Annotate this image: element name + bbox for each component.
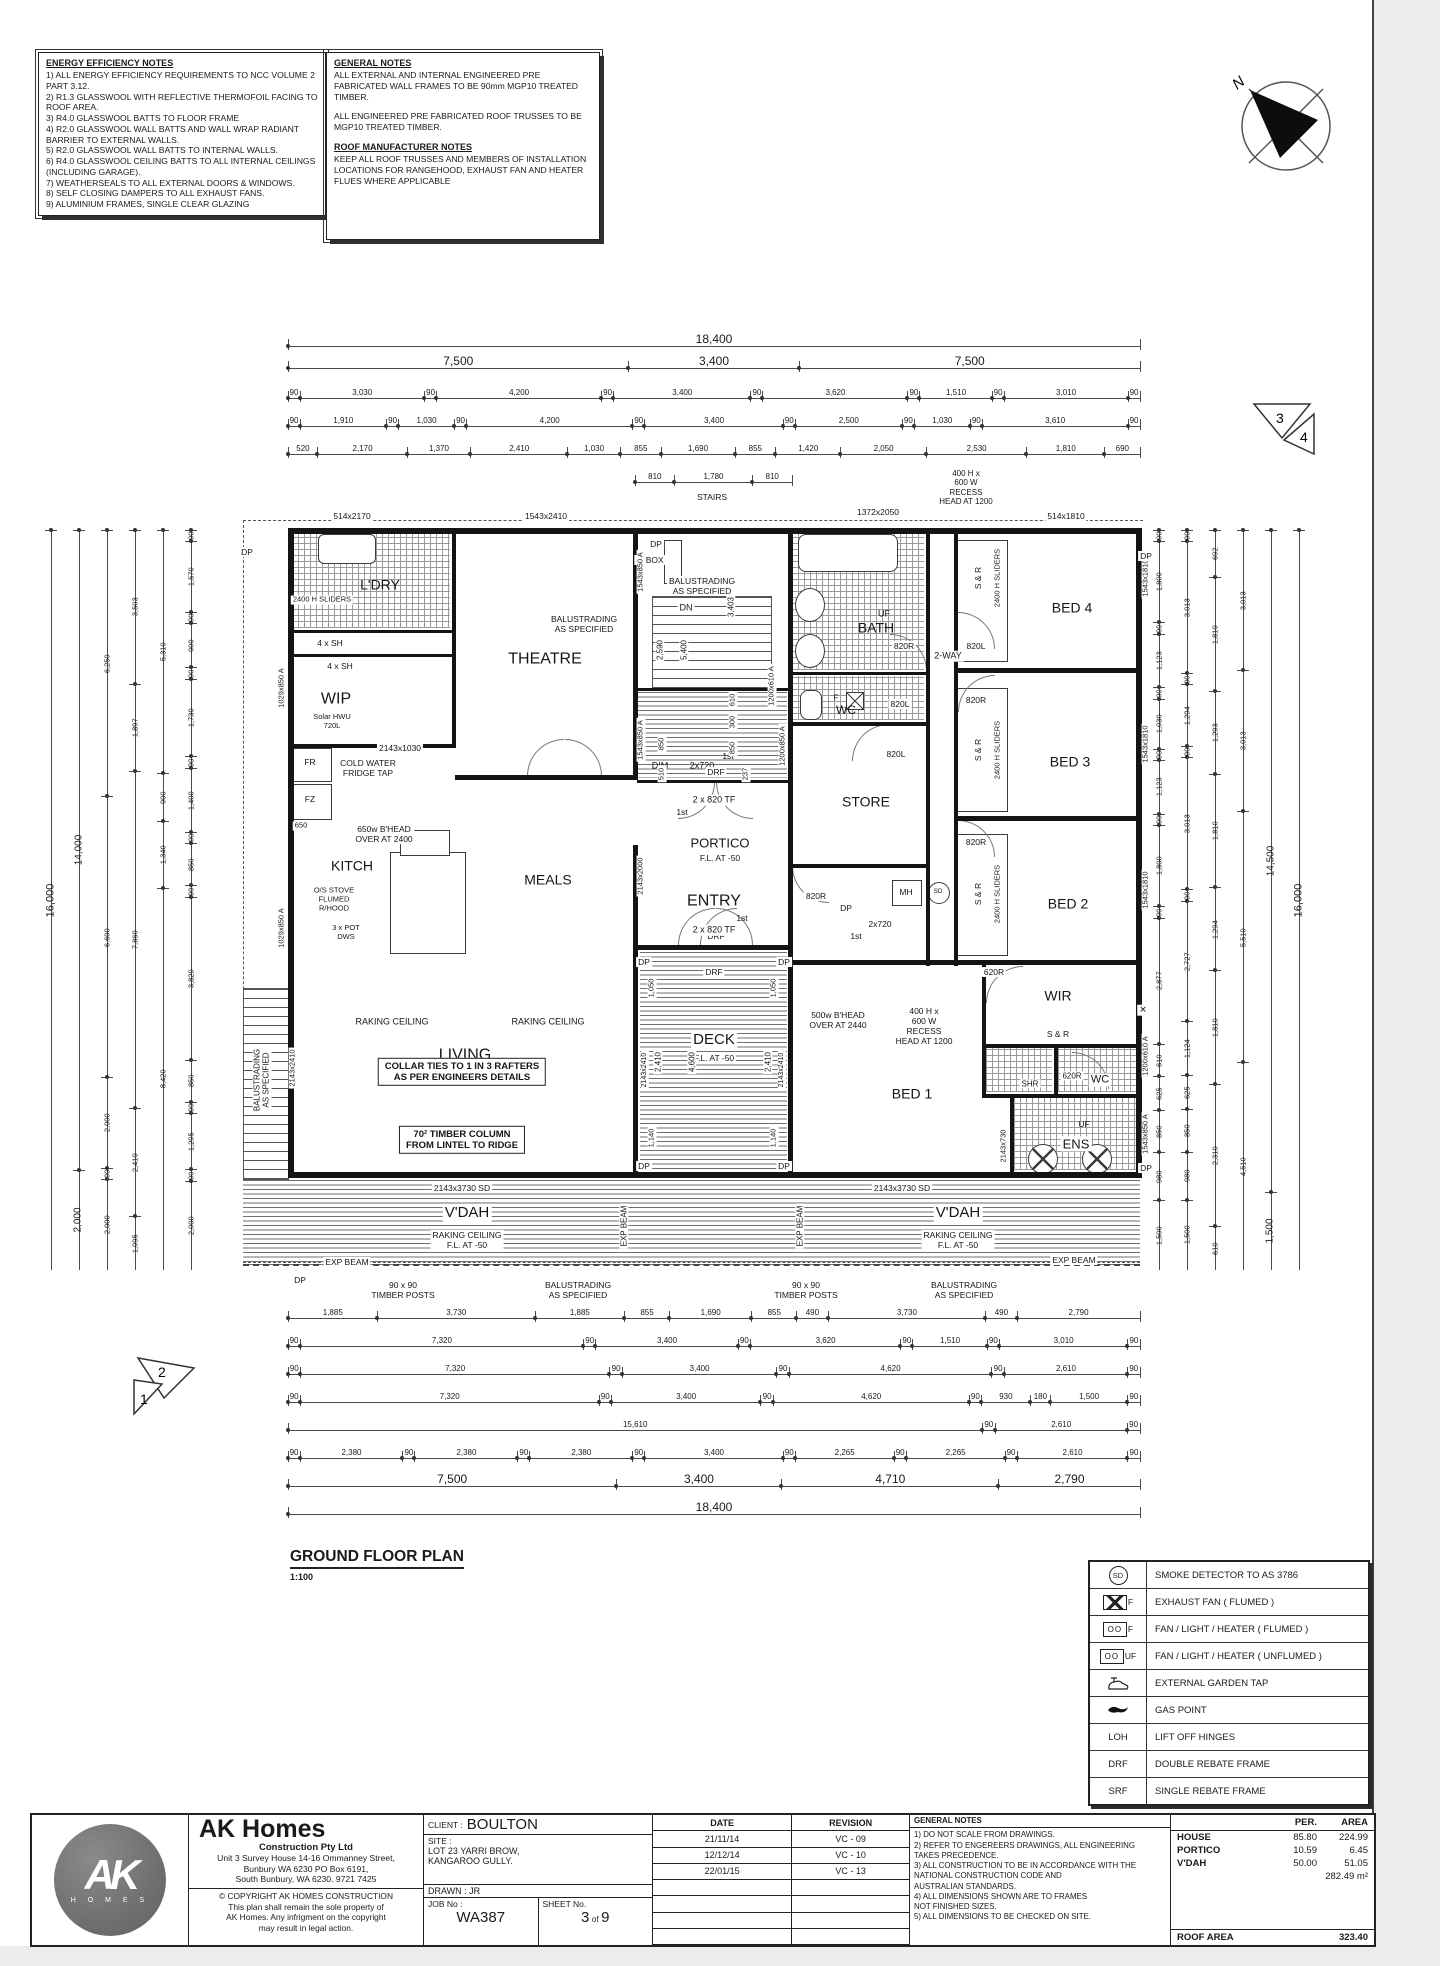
plan-annotation: 850: [658, 736, 667, 753]
plan-annotation: 500w B'HEAD OVER AT 2440: [807, 1010, 868, 1030]
plan-annotation: DRF: [703, 967, 724, 977]
plan-annotation: 1543x850 A: [1142, 1112, 1151, 1156]
plan-annotation: 2143x2000: [637, 855, 646, 896]
wall: [633, 945, 793, 950]
plan-annotation: 400 H x 600 W RECESS HEAD AT 1200: [896, 1006, 953, 1046]
dimension-column: 14,0002,000: [72, 530, 86, 1270]
wall: [452, 528, 456, 746]
plan-annotation: 620R: [1060, 1071, 1083, 1080]
plan-annotation: 300: [729, 714, 738, 731]
plan-annotation: 1,140: [648, 1127, 657, 1150]
plan-annotation: THEATRE: [508, 651, 581, 670]
svg-text:3: 3: [1276, 410, 1284, 426]
plan-annotation: 237: [742, 766, 751, 783]
area-row: V'DAH50.0051.05: [1171, 1857, 1374, 1870]
wall: [982, 1094, 1140, 1098]
client-name: BOULTON: [467, 1816, 538, 1833]
dimension-row: 1,8853,7301,8858551,6908554903,7304902,7…: [288, 1308, 1140, 1322]
plan-annotation: DRF: [705, 767, 726, 777]
plan-annotation: RAKING CEILING: [355, 1017, 428, 1028]
plan-annotation: 3 x POT DWS: [332, 924, 360, 942]
plan-annotation: 820R: [892, 641, 916, 651]
plan-annotation: BED 2: [1048, 896, 1088, 913]
drawing-sheet-page: ENERGY EFFICIENCY NOTES 1) ALL ENERGY EF…: [0, 0, 1440, 1966]
logo-monogram: AK: [85, 1856, 136, 1894]
oo-icon: OOUF: [1090, 1643, 1147, 1669]
dimension-row: 8101,780810: [635, 472, 792, 486]
plan-annotation: 1029x850 A: [278, 666, 287, 710]
floor-hatch: [243, 1180, 1140, 1266]
fan-icon: F: [1090, 1589, 1147, 1615]
dimension-column: 903,013901,294903,013902,7271,1246258509…: [1180, 530, 1194, 1270]
plan-annotation: DECK: [691, 1031, 737, 1049]
plan-annotation: WIP: [321, 691, 351, 710]
svg-text:1: 1: [140, 1391, 148, 1407]
wall: [455, 775, 637, 780]
plan-annotation: 1543x850 A: [637, 718, 646, 762]
job-number: WA387: [428, 1909, 534, 1926]
plan-annotation: 4 x SH: [327, 661, 353, 671]
logo-word: H O M E S: [71, 1897, 149, 1904]
plan-annotation: 820R: [964, 695, 988, 705]
plan-annotation: F.L. AT -50: [700, 853, 740, 863]
plan-annotation: 2 x 820 TF: [691, 925, 738, 936]
area-row: HOUSE85.80224.99: [1171, 1831, 1374, 1844]
dimension-row: 907,320903,400904,620909301801,50090: [288, 1392, 1140, 1406]
plan-annotation: 2143x3730 SD: [432, 1183, 492, 1193]
plan-annotation: 620R: [982, 967, 1006, 977]
svg-text:N: N: [1232, 73, 1248, 93]
plan-annotation: 514x2170: [331, 511, 372, 521]
text-icon: LOH: [1090, 1724, 1147, 1750]
plan-annotation: BALUSTRADING AS SPECIFIED: [551, 614, 617, 634]
site-row: SITE : LOT 23 YARRI BROW, KANGAROO GULLY…: [424, 1835, 652, 1885]
plan-annotation: EXP BEAM: [323, 1257, 370, 1267]
plan-annotation: V'DAH: [934, 1204, 983, 1222]
drawn-row: DRAWN : JR: [424, 1885, 652, 1898]
wall: [288, 528, 1142, 534]
door-swing: [852, 724, 889, 761]
section-marker-3-4: 3 4: [1248, 396, 1320, 465]
company-name: AK Homes: [189, 1817, 423, 1842]
plan-annotation: BED 1: [892, 1086, 932, 1103]
dashed-outline: [243, 520, 1143, 521]
dimension-row: 15,610902,61090: [288, 1420, 1140, 1434]
wall: [288, 630, 452, 633]
plan-title: GROUND FLOOR PLAN: [290, 1548, 464, 1569]
plan-annotation: 650w B'HEAD OVER AT 2400: [353, 824, 414, 844]
plan-annotation: 400 H x 600 W RECESS HEAD AT 1200: [939, 469, 993, 507]
plan-annotation: 1200x850 A: [779, 724, 788, 768]
general-notes-box: GENERAL NOTES ALL EXTERNAL AND INTERNAL …: [326, 52, 600, 240]
circle-icon: SD: [1090, 1562, 1147, 1588]
plan-annotation: BATH: [858, 620, 894, 637]
plan-annotation: 1st: [850, 931, 861, 941]
plan-annotation: KITCH: [331, 858, 373, 875]
fixture: [798, 534, 898, 572]
plan-annotation: 1543x1810: [1142, 557, 1151, 598]
dimension-column: 901,800901,123901,030901,123901,800902,8…: [1152, 530, 1166, 1270]
plan-annotation: 1200x610 A: [1142, 1034, 1151, 1078]
plan-annotation: RAKING CEILING: [511, 1017, 584, 1028]
wall: [1054, 1048, 1058, 1096]
legend-label: EXHAUST FAN ( FLUMED ): [1147, 1589, 1368, 1615]
plan-annotation: BALUSTRADING AS SPECIFIED: [253, 1047, 272, 1113]
oo-icon: OOF: [1090, 1616, 1147, 1642]
plan-annotation: 2x720: [866, 919, 893, 929]
legend-label: SMOKE DETECTOR TO AS 3786: [1147, 1562, 1368, 1588]
plan-annotation: Solar HWU 720L: [313, 713, 351, 731]
plan-annotation: DN: [678, 603, 695, 614]
plan-annotation: MEALS: [524, 872, 571, 889]
plan-annotation: BALUSTRADING AS SPECIFIED: [667, 576, 737, 596]
titleblock-general-notes: GENERAL NOTES 1) DO NOT SCALE FROM DRAWI…: [910, 1815, 1171, 1945]
fixture: [1028, 1144, 1058, 1174]
section-marker-2-1: 2 1: [128, 1352, 200, 1425]
sheet-number-cell: SHEET No. 3 of 9: [539, 1898, 653, 1945]
dimension-row: 903,030904,200903,400903,620901,510903,0…: [288, 388, 1140, 402]
plan-annotation: DP: [776, 1161, 792, 1171]
wall: [788, 960, 1140, 965]
plan-annotation: EXP BEAM: [619, 1204, 628, 1249]
dimension-column: 3,5031,8977,8602,4101,095: [128, 530, 142, 1270]
revision-table: DATEREVISION21/11/14VC - 0912/12/14VC - …: [653, 1815, 910, 1945]
plan-annotation: 2143x1030: [377, 743, 423, 753]
roof-manufacturer-notes-body: KEEP ALL ROOF TRUSSES AND MEMBERS OF INS…: [334, 154, 592, 186]
plan-annotation: 2,590: [655, 638, 664, 662]
plan-annotation: 1543x1810: [1142, 723, 1151, 764]
plan-annotation: 820L: [965, 641, 988, 651]
plan-annotation: FR: [304, 757, 315, 767]
company-logo: AK H O M E S: [32, 1815, 189, 1945]
wall: [954, 528, 958, 966]
plan-annotation: COLLAR TIES TO 1 IN 3 RAFTERS AS PER ENG…: [378, 1058, 546, 1086]
energy-notes-body: 1) ALL ENERGY EFFICIENCY REQUIREMENTS TO…: [46, 70, 318, 210]
door-swing: [565, 739, 602, 776]
plan-annotation: 70² TIMBER COLUMN FROM LINTEL TO RIDGE: [399, 1126, 525, 1154]
plan-annotation: ENS: [1061, 1136, 1092, 1151]
company-info: AK Homes Construction Pty Ltd Unit 3 Sur…: [189, 1815, 424, 1945]
plan-annotation: 820L: [889, 699, 912, 709]
floor-hatch: [652, 596, 772, 688]
plan-annotation: STAIRS: [697, 492, 727, 502]
fixture: [318, 534, 376, 564]
plan-annotation: 4 x SH: [317, 638, 343, 648]
legend-row: OOUFFAN / LIGHT / HEATER ( UNFLUMED ): [1090, 1643, 1368, 1670]
wall: [1136, 528, 1142, 1178]
job-sheet-row: JOB No : WA387 SHEET No. 3 of 9: [424, 1898, 652, 1945]
dimension-row: 18,400: [288, 336, 1140, 350]
plan-annotation: COLD WATER FRIDGE TAP: [340, 758, 396, 778]
fixture: [800, 690, 822, 720]
plan-annotation: O/S STOVE FLUMED R/HOOD: [314, 887, 354, 914]
legend-label: EXTERNAL GARDEN TAP: [1147, 1670, 1368, 1696]
copyright-note: © COPYRIGHT AK HOMES CONSTRUCTION This p…: [189, 1888, 423, 1933]
plan-annotation: UF: [1078, 1119, 1089, 1129]
logo-circle: AK H O M E S: [54, 1824, 166, 1936]
area-row: 282.49 m²: [1171, 1870, 1374, 1883]
plan-annotation: 2,410: [653, 1050, 662, 1074]
plan-heading: GROUND FLOOR PLAN 1:100: [290, 1548, 464, 1582]
dimension-column: 16,000: [1292, 530, 1306, 1270]
revision-row: 22/01/15VC - 13: [653, 1864, 909, 1880]
wall: [790, 672, 928, 675]
plan-annotation: 820R: [804, 891, 828, 901]
dimension-column: 16,000: [44, 530, 58, 1270]
svg-text:4: 4: [1300, 429, 1308, 445]
legend-row: EXTERNAL GARDEN TAP: [1090, 1670, 1368, 1697]
plan-annotation: 1,050: [770, 977, 779, 1000]
revision-row: 21/11/14VC - 09: [653, 1831, 909, 1847]
plan-annotation: 610: [729, 692, 738, 709]
area-row: PORTICO10.596.45: [1171, 1844, 1374, 1857]
dimension-column: 5,3109001,3408,420: [156, 530, 170, 1270]
plan-annotation: 650: [293, 822, 310, 831]
dimension-row: 7,5003,4004,7102,790: [288, 1476, 1140, 1490]
general-notes-para1: ALL EXTERNAL AND INTERNAL ENGINEERED PRE…: [334, 70, 592, 102]
plan-annotation: 1543x2410: [523, 511, 569, 521]
dimension-row: 5202,1701,3702,4101,0308551,6908551,4202…: [288, 444, 1140, 458]
plan-annotation: 1,140: [770, 1127, 779, 1150]
roof-area-value: 323.40: [1273, 1932, 1369, 1943]
legend-label: GAS POINT: [1147, 1697, 1368, 1723]
plan-annotation: DP: [239, 547, 255, 557]
plan-annotation: S & R: [1047, 1029, 1069, 1039]
plan-annotation: SHR: [1020, 1079, 1041, 1088]
plan-annotation: L'DRY: [360, 577, 400, 594]
energy-notes-title: ENERGY EFFICIENCY NOTES: [46, 58, 318, 69]
plan-annotation: DP: [838, 903, 854, 913]
fixture: [795, 634, 825, 668]
areas-table: PER. AREA HOUSE85.80224.99PORTICO10.596.…: [1171, 1815, 1374, 1945]
roof-manufacturer-notes-title: ROOF MANUFACTURER NOTES: [334, 142, 592, 153]
north-compass: N: [1232, 72, 1340, 185]
wall: [633, 950, 638, 1174]
legend-row: GAS POINT: [1090, 1697, 1368, 1724]
plan-annotation: RAKING CEILING F.L. AT -50: [922, 1230, 995, 1250]
wall: [637, 688, 788, 691]
wall: [954, 816, 1140, 821]
wall: [288, 744, 456, 748]
plan-annotation: PORTICO: [691, 835, 750, 850]
plan-annotation: DP: [636, 1161, 652, 1171]
plan-annotation: 2143x730: [1000, 1128, 1009, 1165]
plan-annotation: S & R: [973, 739, 983, 761]
plan-scale: 1:100: [290, 1572, 464, 1582]
legend-table: SDSMOKE DETECTOR TO AS 3786FEXHAUST FAN …: [1088, 1560, 1370, 1806]
plan-annotation: DP: [1138, 551, 1154, 561]
plan-annotation: 1st: [676, 807, 687, 817]
plan-annotation: 2400 H SLIDERS: [994, 721, 1003, 779]
text-icon: DRF: [1090, 1751, 1147, 1777]
plan-annotation: 4,600: [687, 1050, 696, 1074]
dimension-column: 901,57090900901,730901,40090850903,82085…: [184, 530, 198, 1270]
plan-annotation: BED 4: [1052, 600, 1092, 617]
legend-label: LIFT OFF HINGES: [1147, 1724, 1368, 1750]
plan-annotation: 1200x610 A: [768, 664, 777, 708]
plan-annotation: 2143x2410: [778, 1051, 786, 1090]
dimension-column: 6921,8101,2931,8101,2941,8102,310610: [1208, 530, 1222, 1270]
legend-label: SINGLE REBATE FRAME: [1147, 1778, 1368, 1804]
dimension-column: 3,0133,0135,5104,510: [1236, 530, 1250, 1270]
legend-row: OOFFAN / LIGHT / HEATER ( FLUMED ): [1090, 1616, 1368, 1643]
wall: [982, 965, 986, 1097]
dimension-column: 14,5001,500: [1264, 530, 1278, 1270]
plan-annotation: 2143x2410: [641, 1051, 649, 1090]
plan-annotation: EXP BEAM: [1050, 1255, 1097, 1265]
legend-label: FAN / LIGHT / HEATER ( UNFLUMED ): [1147, 1643, 1368, 1669]
dimension-column: 6,2506,6002,000902,000: [100, 530, 114, 1270]
plan-annotation: ✕: [1137, 1005, 1149, 1016]
plan-annotation: DP: [648, 539, 664, 549]
title-block: AK H O M E S AK Homes Construction Pty L…: [30, 1813, 1376, 1947]
plan-annotation: 1,050: [648, 977, 657, 1000]
project-info: CLIENT : BOULTON SITE : LOT 23 YARRI BRO…: [424, 1815, 653, 1945]
wall: [954, 668, 1140, 673]
plan-annotation: 820R: [964, 837, 988, 847]
door-swing: [527, 739, 564, 776]
dimension-row: 7,5003,4007,500: [288, 358, 1140, 372]
plan-annotation: 1543x1810: [1142, 869, 1151, 910]
plan-annotation: 850: [729, 740, 738, 757]
plan-annotation: 2-WAY: [932, 651, 964, 662]
wall: [790, 864, 930, 868]
plan-annotation: 514x1810: [1045, 511, 1086, 521]
door-swing: [958, 675, 995, 712]
plan-annotation: RAKING CEILING F.L. AT -50: [431, 1230, 504, 1250]
plan-annotation: 2143x2410: [289, 1047, 298, 1088]
legend-row: FEXHAUST FAN ( FLUMED ): [1090, 1589, 1368, 1616]
dimension-row: 901,910901,030904,200903,400902,500901,0…: [288, 416, 1140, 430]
company-address: Unit 3 Survey House 14-16 Ommanney Stree…: [189, 1853, 423, 1885]
plan-annotation: DP: [1138, 1163, 1154, 1173]
plan-annotation: DP: [636, 957, 652, 967]
tap-icon: [1090, 1670, 1147, 1696]
plan-annotation: F.L. AT -50: [692, 1053, 736, 1063]
revision-row: 12/12/14VC - 10: [653, 1848, 909, 1864]
plan-annotation: F: [834, 693, 839, 702]
plan-annotation: DP: [776, 957, 792, 967]
dimension-row: 18,400: [288, 1504, 1140, 1518]
wall: [790, 722, 930, 726]
legend-label: FAN / LIGHT / HEATER ( FLUMED ): [1147, 1616, 1368, 1642]
legend-row: SRFSINGLE REBATE FRAME: [1090, 1778, 1368, 1804]
general-notes-title: GENERAL NOTES: [334, 58, 592, 69]
legend-row: SDSMOKE DETECTOR TO AS 3786: [1090, 1562, 1368, 1589]
wall: [1010, 1094, 1014, 1174]
plan-annotation: FZ: [305, 794, 315, 804]
wall: [788, 528, 793, 952]
wall: [926, 528, 930, 966]
dimension-row: 907,320903,400904,620902,61090: [288, 1364, 1140, 1378]
plan-annotation: STORE: [842, 794, 890, 811]
general-notes-para2: ALL ENGINEERED PRE FABRICATED ROOF TRUSS…: [334, 111, 592, 132]
energy-efficiency-notes: ENERGY EFFICIENCY NOTES 1) ALL ENERGY EF…: [38, 52, 326, 216]
svg-text:2: 2: [158, 1364, 166, 1380]
dimension-row: 907,320903,400903,620901,510903,01090: [288, 1336, 1140, 1350]
client-row: CLIENT : BOULTON: [424, 1815, 652, 1835]
plan-annotation: 5,400: [679, 638, 688, 662]
company-subtitle: Construction Pty Ltd: [189, 1842, 423, 1853]
plan-annotation: 2,410: [763, 1050, 772, 1074]
plan-annotation: S & R: [973, 567, 983, 589]
wall: [982, 1044, 1140, 1048]
plan-annotation: 2400 H SLIDERS: [994, 549, 1003, 607]
plan-annotation: MH: [899, 887, 912, 897]
compass-icon: N: [1232, 72, 1340, 180]
plan-annotation: WC: [836, 703, 856, 717]
plan-annotation: 3,403: [726, 595, 735, 619]
plan-annotation: 90 x 90 TIMBER POSTS: [371, 1280, 434, 1300]
wall: [788, 950, 793, 1174]
plan-annotation: 2 x 820 TF: [691, 795, 738, 806]
fixture: [390, 852, 466, 954]
plan-annotation: 1029x850 A: [278, 906, 287, 950]
plan-annotation: UF: [878, 609, 890, 620]
plan-annotation: WIR: [1044, 988, 1071, 1005]
legend-row: DRFDOUBLE REBATE FRAME: [1090, 1751, 1368, 1778]
plan-annotation: 820L: [885, 749, 908, 759]
plan-annotation: V'DAH: [443, 1204, 492, 1222]
legend-row: LOHLIFT OFF HINGES: [1090, 1724, 1368, 1751]
text-icon: SRF: [1090, 1778, 1147, 1804]
plan-annotation: DP: [292, 1275, 308, 1285]
plan-annotation: 510: [658, 766, 667, 783]
plan-annotation: BALUSTRADING AS SPECIFIED: [545, 1280, 611, 1300]
job-number-cell: JOB No : WA387: [424, 1898, 539, 1945]
plan-annotation: EXP BEAM: [795, 1204, 804, 1249]
plan-annotation: 1st: [736, 913, 747, 923]
plan-annotation: ENTRY: [687, 893, 741, 912]
plan-annotation: SD: [933, 888, 942, 896]
gas-icon: [1090, 1697, 1147, 1723]
plan-annotation: BED 3: [1050, 754, 1090, 771]
fixture: [795, 588, 825, 622]
wall: [288, 654, 452, 657]
plan-annotation: 1372x2050: [855, 507, 901, 517]
plan-annotation: BALUSTRADING AS SPECIFIED: [931, 1280, 997, 1300]
plan-annotation: 2400 H SLIDERS: [994, 865, 1003, 923]
plan-annotation: S & R: [973, 883, 983, 905]
plan-annotation: 1543x850 A: [637, 550, 646, 594]
legend-label: DOUBLE REBATE FRAME: [1147, 1751, 1368, 1777]
plan-annotation: WC: [1089, 1074, 1111, 1087]
plan-annotation: 90 x 90 TIMBER POSTS: [774, 1280, 837, 1300]
plan-annotation: 2143x3730 SD: [872, 1183, 932, 1193]
plan-annotation: 2400 H SLIDERS: [291, 596, 353, 605]
dimension-row: 902,380902,380902,380903,400902,265902,2…: [288, 1448, 1140, 1462]
